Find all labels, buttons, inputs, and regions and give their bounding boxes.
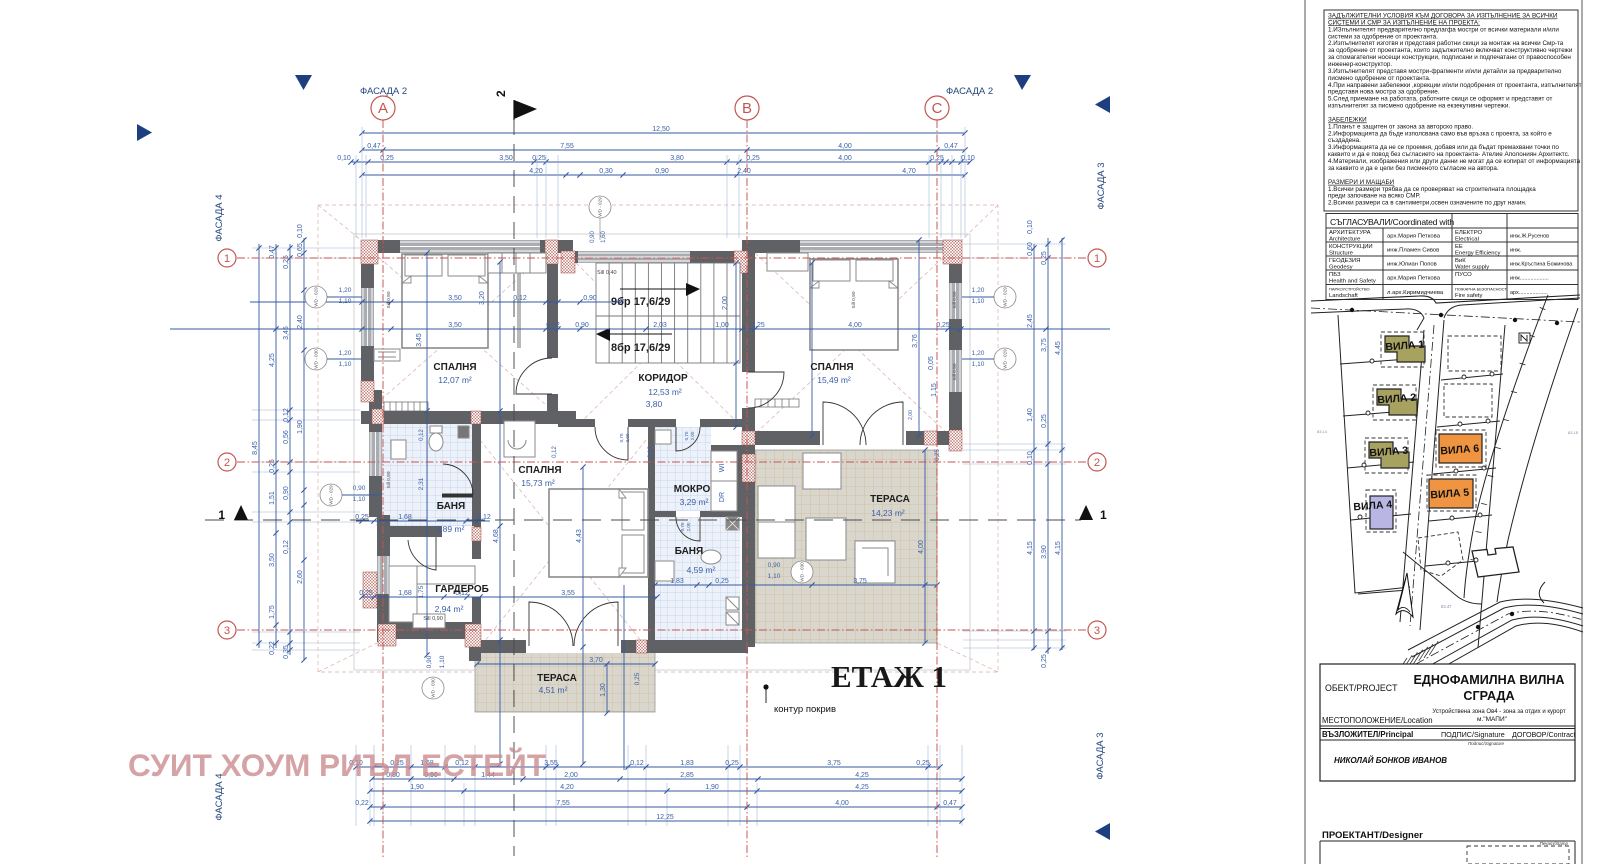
svg-text:8,45: 8,45 (252, 441, 259, 455)
svg-text:БАНЯ: БАНЯ (675, 546, 703, 557)
svg-text:WD - 029: WD - 029 (1003, 287, 1008, 307)
svg-text:2,00: 2,00 (564, 772, 578, 779)
svg-text:4,25: 4,25 (855, 784, 869, 791)
svg-text:4,25: 4,25 (855, 772, 869, 779)
svg-text:3,29 m²: 3,29 m² (680, 497, 709, 507)
svg-text:Sill 0,90: Sill 0,90 (851, 291, 857, 308)
svg-text:0,12: 0,12 (630, 760, 644, 767)
svg-text:0,25: 0,25 (1041, 414, 1048, 428)
svg-text:Sill 0,90: Sill 0,90 (386, 471, 392, 488)
svg-text:83.47: 83.47 (1441, 604, 1452, 609)
svg-text:Water supply: Water supply (1455, 264, 1489, 270)
svg-text:4,00: 4,00 (918, 540, 925, 554)
svg-text:ГАРДЕРОБ: ГАРДЕРОБ (435, 584, 489, 595)
svg-text:Печат/Stamp: Печат/Stamp (1540, 841, 1569, 846)
svg-text:2: 2 (1094, 457, 1100, 469)
svg-text:0,47: 0,47 (269, 245, 276, 259)
svg-text:1,10: 1,10 (353, 496, 366, 503)
svg-text:3,50: 3,50 (499, 155, 513, 162)
svg-text:0,10: 0,10 (337, 155, 351, 162)
svg-text:1,90: 1,90 (297, 420, 304, 434)
svg-text:Устройствена зона Ов4 - зона з: Устройствена зона Ов4 - зона за отдих и … (1432, 708, 1565, 715)
svg-text:12,50: 12,50 (652, 126, 670, 133)
svg-text:С: С (932, 100, 943, 117)
svg-text:създадена.: създадена. (1328, 137, 1361, 144)
svg-text:3,80: 3,80 (646, 399, 663, 409)
svg-text:0,25: 0,25 (380, 155, 394, 162)
svg-text:ФАСАДА 3: ФАСАДА 3 (1095, 732, 1106, 779)
svg-text:арх...................: арх................... (1510, 290, 1548, 296)
svg-text:арх.Мария Петкова: арх.Мария Петкова (1387, 234, 1441, 240)
svg-text:НИКОЛАЙ БОНКОВ ИВАНОВ: НИКОЛАЙ БОНКОВ ИВАНОВ (1334, 756, 1447, 765)
svg-text:1: 1 (224, 253, 230, 265)
svg-text:2.Всички размери са в сантимет: 2.Всички размери са в сантиметри,освен о… (1328, 200, 1527, 207)
svg-text:3,75: 3,75 (827, 760, 841, 767)
svg-text:0,12: 0,12 (552, 446, 558, 458)
svg-text:ФАСАДА 3: ФАСАДА 3 (1096, 162, 1107, 209)
svg-text:изпълнителят за писмено одобре: изпълнителят за писмено одобрение на екз… (1328, 102, 1510, 110)
svg-text:ЕЕ: ЕЕ (1455, 244, 1463, 250)
svg-text:3.Изпълнителят представя мостр: 3.Изпълнителят представя мостри-фрагмент… (1328, 67, 1562, 75)
svg-text:инж.Кръстина Божинова: инж.Кръстина Божинова (1510, 262, 1573, 268)
svg-text:0,90: 0,90 (575, 322, 589, 329)
svg-text:4,15: 4,15 (1055, 541, 1062, 555)
svg-text:1,10: 1,10 (439, 655, 446, 668)
svg-text:0,25: 0,25 (935, 449, 941, 461)
svg-text:1,90: 1,90 (410, 784, 424, 791)
svg-text:за одобрение от проектанта, ко: за одобрение от проектанта, които задълж… (1328, 46, 1573, 54)
svg-text:инж.Пламен Сивов: инж.Пламен Сивов (1387, 248, 1439, 254)
svg-text:3,50: 3,50 (448, 322, 462, 329)
svg-text:2,60: 2,60 (297, 570, 304, 584)
svg-text:0,47: 0,47 (943, 800, 957, 807)
svg-text:ГЕОДЕЗИЯ: ГЕОДЕЗИЯ (1329, 258, 1360, 264)
svg-text:ОБЕКТ/PROJECT: ОБЕКТ/PROJECT (1325, 683, 1398, 693)
svg-text:Structure: Structure (1329, 250, 1354, 256)
svg-text:4.Материали, изображения или д: 4.Материали, изображения или други данни… (1328, 157, 1581, 165)
svg-text:ПБЗ: ПБЗ (1329, 272, 1341, 278)
svg-text:3,50: 3,50 (448, 295, 462, 302)
svg-text:КОРИДОР: КОРИДОР (638, 373, 688, 384)
svg-text:2,85: 2,85 (680, 772, 694, 779)
svg-text:Sill 0,90: Sill 0,90 (952, 291, 958, 308)
svg-text:ПАРКОУСТРОЙСТВО: ПАРКОУСТРОЙСТВО (1329, 287, 1370, 292)
svg-text:МОКРО: МОКРО (674, 484, 711, 495)
svg-text:WD - 029: WD - 029 (314, 287, 319, 307)
svg-text:3,75: 3,75 (1041, 338, 1048, 352)
svg-text:писмено одобрение от проектант: писмено одобрение от проектанта. (1328, 74, 1431, 82)
svg-text:БАНЯ: БАНЯ (437, 501, 465, 512)
svg-text:ВиК: ВиК (1455, 258, 1466, 264)
svg-text:83.15: 83.15 (1568, 430, 1579, 435)
svg-text:ПУСО: ПУСО (1455, 272, 1472, 278)
svg-text:15,73 m²: 15,73 m² (521, 478, 555, 488)
svg-text:1,10: 1,10 (972, 361, 985, 368)
svg-text:WD - 029: WD - 029 (1003, 349, 1008, 369)
svg-text:м."МАПИ": м."МАПИ" (1477, 716, 1508, 723)
svg-text:Sill 0,90: Sill 0,90 (386, 291, 392, 308)
svg-text:2: 2 (224, 457, 230, 469)
svg-text:4.При направени забележки ,кор: 4.При направени забележки ,корекции и/ил… (1328, 81, 1582, 89)
svg-text:ПРОЕКТАНТ/Designer: ПРОЕКТАНТ/Designer (1322, 830, 1423, 841)
svg-text:ФАСАДА 4: ФАСАДА 4 (214, 194, 225, 241)
svg-text:0,25: 0,25 (269, 459, 276, 473)
svg-text:WI: WI (719, 464, 726, 473)
svg-text:инж.Юлиан Попов: инж.Юлиан Попов (1387, 262, 1437, 268)
svg-text:0,22: 0,22 (355, 800, 369, 807)
svg-text:3,89 m²: 3,89 m² (436, 524, 465, 534)
svg-text:МЕСТОПОЛОЖЕНИЕ/Location: МЕСТОПОЛОЖЕНИЕ/Location (1322, 716, 1433, 725)
svg-text:0,35: 0,35 (283, 645, 290, 659)
svg-text:0,12: 0,12 (546, 322, 560, 329)
svg-text:4,20: 4,20 (529, 168, 543, 175)
svg-text:3,50: 3,50 (269, 553, 276, 567)
svg-text:1,30: 1,30 (600, 683, 607, 697)
svg-text:0,65: 0,65 (297, 243, 304, 257)
svg-text:СПАЛНЯ: СПАЛНЯ (433, 362, 476, 373)
svg-text:КОНСТРУКЦИИ: КОНСТРУКЦИИ (1329, 244, 1373, 250)
svg-text:0,25: 0,25 (916, 760, 930, 767)
svg-text:0,25: 0,25 (359, 590, 373, 597)
svg-text:1,10: 1,10 (768, 573, 781, 580)
svg-text:1,20: 1,20 (339, 287, 352, 294)
svg-text:3,70: 3,70 (589, 657, 603, 664)
svg-text:1,83: 1,83 (670, 578, 684, 585)
svg-text:3.Информацията да не се проемн: 3.Информацията да не се проемня, добавя … (1328, 143, 1559, 151)
svg-text:1: 1 (1094, 253, 1100, 265)
svg-text:0,90: 0,90 (353, 485, 366, 492)
svg-text:СУИТ ХОУМ РИЪЛ ЕСТЕЙТ: СУИТ ХОУМ РИЪЛ ЕСТЕЙТ (128, 747, 546, 783)
svg-text:1,75: 1,75 (269, 605, 276, 619)
svg-text:0,25: 0,25 (283, 255, 290, 269)
svg-text:0,90: 0,90 (583, 295, 597, 302)
svg-text:0,25: 0,25 (725, 760, 739, 767)
svg-text:1,83: 1,83 (680, 760, 694, 767)
svg-text:1,20: 1,20 (972, 287, 985, 294)
svg-text:СЪГЛАСУВАЛИ/Coordinated with: СЪГЛАСУВАЛИ/Coordinated with (1330, 217, 1454, 227)
svg-text:Health and Safety: Health and Safety (1329, 278, 1376, 284)
svg-text:83.14: 83.14 (1317, 429, 1328, 434)
svg-text:0,12: 0,12 (283, 408, 290, 422)
svg-text:0,90: 0,90 (426, 655, 433, 668)
svg-text:0,70: 0,70 (684, 431, 689, 440)
svg-text:2,00: 2,00 (722, 296, 729, 310)
svg-text:А: А (378, 100, 388, 117)
svg-text:ТЕРАСА: ТЕРАСА (870, 494, 910, 505)
svg-text:3: 3 (1094, 625, 1100, 637)
svg-text:4,51 m²: 4,51 m² (539, 685, 568, 695)
svg-text:7,55: 7,55 (560, 143, 574, 150)
svg-text:арх.Мария Петкова: арх.Мария Петкова (1387, 276, 1441, 282)
svg-text:Architecture: Architecture (1329, 236, 1361, 242)
svg-text:инж.: инж. (1510, 248, 1522, 254)
svg-text:ПОДПИС/Signature: ПОДПИС/Signature (1441, 730, 1505, 739)
svg-text:ФАСАДА 2: ФАСАДА 2 (946, 86, 993, 97)
svg-text:0,10: 0,10 (1027, 451, 1034, 465)
svg-text:3,20: 3,20 (479, 291, 486, 305)
svg-text:каквито и да е повод без съгла: каквито и да е повод без съгласието на п… (1328, 150, 1570, 158)
svg-text:1,10: 1,10 (339, 361, 352, 368)
svg-text:ЕЛЕКТРО: ЕЛЕКТРО (1455, 230, 1483, 236)
svg-text:WD - 030: WD - 030 (314, 349, 319, 369)
svg-text:инж.Ж.Русенов: инж.Ж.Русенов (1510, 234, 1549, 240)
svg-text:3,75: 3,75 (853, 578, 867, 585)
svg-text:Geodesy: Geodesy (1329, 264, 1353, 270)
svg-text:ПОЖАРНА БЕЗОПАСНОСТ: ПОЖАРНА БЕЗОПАСНОСТ (1455, 287, 1507, 292)
svg-text:0,12: 0,12 (648, 446, 654, 458)
svg-text:4,25: 4,25 (269, 353, 276, 367)
svg-text:В: В (742, 100, 752, 117)
svg-text:8бр 17,6/29: 8бр 17,6/29 (611, 342, 670, 354)
svg-text:1,40: 1,40 (1027, 408, 1034, 422)
svg-text:2,45: 2,45 (1027, 314, 1034, 328)
svg-text:РАЗМЕРИ И МАЩАБИ: РАЗМЕРИ И МАЩАБИ (1328, 179, 1395, 186)
svg-text:14,23 m²: 14,23 m² (871, 508, 905, 518)
svg-text:0,90: 0,90 (768, 562, 781, 569)
svg-text:ТЕРАСА: ТЕРАСА (537, 673, 577, 684)
svg-text:2,94 m²: 2,94 m² (435, 604, 464, 614)
svg-text:1,68: 1,68 (398, 590, 412, 597)
svg-text:4,00: 4,00 (838, 143, 852, 150)
svg-text:0,47: 0,47 (367, 143, 381, 150)
svg-text:0,60: 0,60 (1027, 242, 1034, 256)
svg-text:2,00: 2,00 (625, 433, 630, 442)
svg-text:4,15: 4,15 (1027, 541, 1034, 555)
svg-text:0,90: 0,90 (655, 168, 669, 175)
svg-text:3,80: 3,80 (670, 155, 684, 162)
svg-text:3,90: 3,90 (1041, 545, 1048, 559)
svg-text:0,47: 0,47 (944, 143, 958, 150)
svg-text:л.арх.Киримидчиева: л.арх.Киримидчиева (1387, 290, 1444, 296)
svg-text:0,25: 0,25 (746, 155, 760, 162)
svg-text:0,12: 0,12 (419, 429, 425, 441)
svg-text:системи за одобрение от проект: системи за одобрение от проектанта. (1328, 32, 1438, 40)
svg-text:1,10: 1,10 (339, 298, 352, 305)
svg-text:DR: DR (719, 492, 726, 502)
svg-text:ЕТАЖ 1: ЕТАЖ 1 (831, 659, 947, 694)
svg-text:Sill 0,40: Sill 0,40 (597, 270, 617, 276)
svg-text:ФАСАДА 2: ФАСАДА 2 (360, 86, 407, 97)
svg-text:1,51: 1,51 (269, 491, 276, 505)
svg-text:0,70: 0,70 (619, 433, 624, 442)
svg-text:0,25: 0,25 (532, 155, 546, 162)
svg-text:2,00: 2,00 (686, 522, 691, 531)
svg-text:контур покрив: контур покрив (774, 704, 836, 715)
svg-text:Electrical: Electrical (1455, 236, 1479, 242)
svg-text:1: 1 (218, 508, 225, 522)
svg-text:0,56: 0,56 (283, 430, 290, 444)
svg-text:0,25: 0,25 (634, 672, 641, 685)
svg-text:Fire safety: Fire safety (1455, 293, 1483, 299)
svg-text:3,76: 3,76 (912, 334, 919, 348)
svg-text:1,20: 1,20 (339, 350, 352, 357)
svg-text:0,22: 0,22 (269, 641, 276, 655)
svg-text:Sill 0,90: Sill 0,90 (423, 616, 443, 622)
svg-text:СИСТЕМИ И СМР ЗА ИЗПЪЛНЕНИЕ НА: СИСТЕМИ И СМР ЗА ИЗПЪЛНЕНИЕ НА ПРОЕКТА: (1328, 19, 1480, 26)
svg-text:1,00: 1,00 (715, 322, 729, 329)
svg-text:0,10: 0,10 (297, 224, 304, 238)
svg-text:4,00: 4,00 (838, 155, 852, 162)
svg-text:WD - 030: WD - 030 (431, 678, 436, 698)
svg-text:1,90: 1,90 (705, 784, 719, 791)
svg-text:4,00: 4,00 (848, 322, 862, 329)
svg-text:4,68: 4,68 (493, 529, 500, 543)
svg-text:WD - 029: WD - 029 (598, 197, 603, 217)
svg-text:2: 2 (494, 90, 508, 97)
svg-text:0,90: 0,90 (283, 486, 290, 500)
svg-text:0,25: 0,25 (751, 322, 765, 329)
svg-text:1: 1 (1100, 508, 1107, 522)
svg-text:WD - 030: WD - 030 (800, 562, 805, 582)
svg-text:0,12: 0,12 (513, 295, 527, 302)
svg-text:3,45: 3,45 (416, 333, 423, 347)
svg-text:1,10: 1,10 (972, 298, 985, 305)
svg-text:4,59 m²: 4,59 m² (687, 565, 716, 575)
svg-text:инж...................: инж................... (1510, 276, 1549, 282)
svg-text:0,10: 0,10 (1027, 220, 1034, 234)
svg-text:0,10: 0,10 (961, 155, 975, 162)
svg-text:0,12: 0,12 (283, 540, 290, 554)
svg-text:0,25: 0,25 (1041, 654, 1048, 668)
svg-text:0,90: 0,90 (590, 231, 596, 243)
svg-text:0,25: 0,25 (936, 322, 950, 329)
svg-text:1,60: 1,60 (601, 231, 607, 243)
svg-text:4,45: 4,45 (1055, 341, 1062, 355)
svg-text:АРХИТЕКТУРА: АРХИТЕКТУРА (1329, 230, 1371, 236)
svg-text:0,25: 0,25 (715, 578, 729, 585)
svg-text:представя нова мостра за одобр: представя нова мостра за одобрение. (1328, 88, 1440, 96)
svg-text:2,00: 2,00 (908, 410, 914, 420)
svg-text:12,07 m²: 12,07 m² (438, 375, 472, 385)
svg-text:12,53 m²: 12,53 m² (648, 387, 682, 397)
svg-text:СПАЛНЯ: СПАЛНЯ (518, 465, 561, 476)
svg-text:Energy Efficiency: Energy Efficiency (1455, 250, 1500, 256)
svg-text:3,45: 3,45 (283, 326, 290, 340)
svg-text:3: 3 (224, 625, 230, 637)
svg-text:2.Изпълнителят изготвя и предс: 2.Изпълнителят изготвя и представя работ… (1328, 39, 1564, 47)
svg-text:2,40: 2,40 (297, 315, 304, 329)
svg-text:3,55: 3,55 (561, 590, 575, 597)
svg-text:2,03: 2,03 (653, 322, 667, 329)
svg-text:ДОГОВОР/Contract: ДОГОВОР/Contract (1512, 730, 1576, 739)
svg-text:Landschaft: Landschaft (1329, 293, 1358, 299)
svg-text:1,20: 1,20 (972, 350, 985, 357)
svg-text:4,43: 4,43 (576, 529, 583, 543)
svg-text:ВЪЗЛОЖИТЕЛ/Principal: ВЪЗЛОЖИТЕЛ/Principal (1322, 730, 1413, 739)
svg-text:Sill 0,90: Sill 0,90 (952, 363, 958, 380)
svg-text:3,55: 3,55 (544, 760, 558, 767)
svg-text:ЕДНОФАМИЛНА ВИЛНА: ЕДНОФАМИЛНА ВИЛНА (1413, 673, 1564, 687)
svg-text:5.След приемане на работата, р: 5.След приемане на работата, работните с… (1328, 95, 1552, 103)
svg-text:2,00: 2,00 (690, 431, 695, 440)
svg-text:2,31: 2,31 (418, 477, 425, 490)
svg-text:7,55: 7,55 (556, 800, 570, 807)
svg-text:1,75: 1,75 (418, 585, 425, 598)
svg-text:за спомагателни носещи констру: за спомагателни носещи конструкции, подп… (1328, 53, 1571, 61)
svg-text:4,00: 4,00 (835, 800, 849, 807)
svg-text:Подпис/Signature: Подпис/Signature (1468, 741, 1504, 746)
svg-text:15,49 m²: 15,49 m² (817, 375, 851, 385)
svg-text:4,20: 4,20 (560, 784, 574, 791)
svg-text:1.Всички размери трябва да се: 1.Всички размери трябва да се проверяват… (1328, 185, 1536, 193)
svg-text:0,05: 0,05 (928, 356, 935, 370)
svg-text:0,70: 0,70 (680, 522, 685, 531)
svg-text:СПАЛНЯ: СПАЛНЯ (810, 362, 853, 373)
svg-text:WD - 029: WD - 029 (329, 485, 334, 505)
svg-text:за каквито и да е цели без пис: за каквито и да е цели без писменото съг… (1328, 164, 1499, 172)
svg-text:12,25: 12,25 (656, 814, 674, 821)
svg-text:0,30: 0,30 (599, 168, 613, 175)
svg-text:4,70: 4,70 (902, 168, 916, 175)
svg-text:СГРАДА: СГРАДА (1463, 689, 1514, 703)
svg-text:2.Информацията да бъде изполсв: 2.Информацията да бъде изполсвана само в… (1328, 129, 1552, 137)
